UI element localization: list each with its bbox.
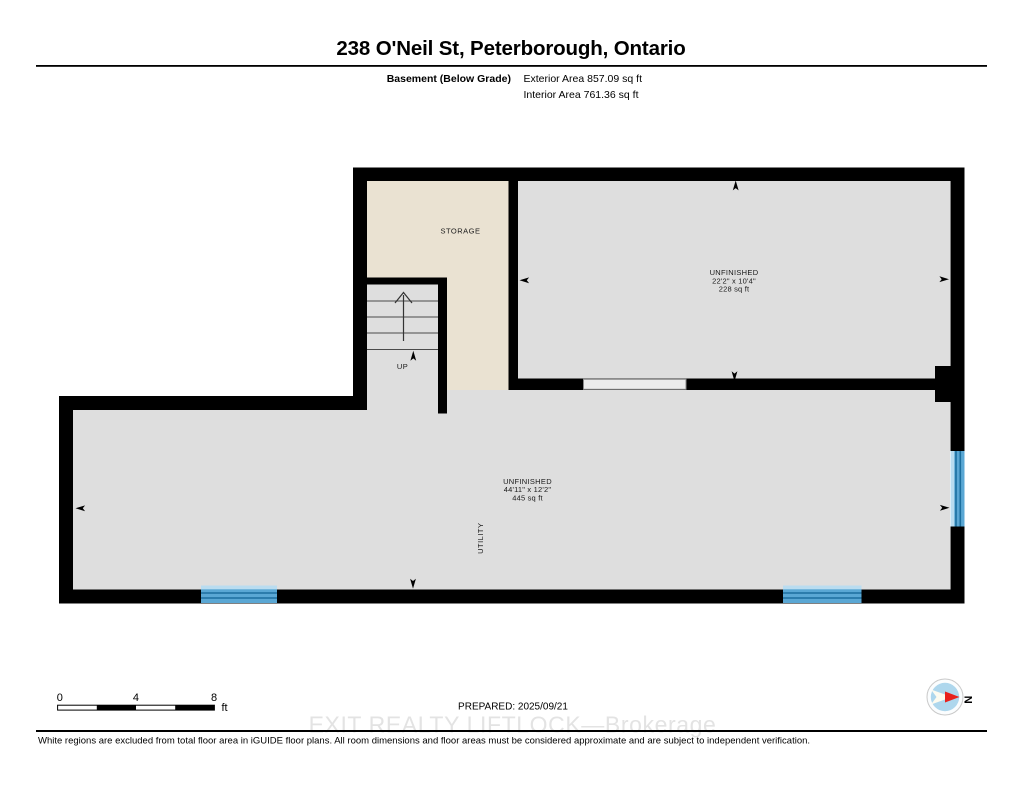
svg-text:EXIT REALTY LIFTLOCK—Brokerage: EXIT REALTY LIFTLOCK—Brokerage xyxy=(309,712,717,738)
svg-text:UTILITY: UTILITY xyxy=(476,522,485,553)
svg-text:4: 4 xyxy=(133,692,139,704)
svg-text:Basement (Below Grade): Basement (Below Grade) xyxy=(387,73,511,85)
svg-text:Exterior Area 857.09 sq ft: Exterior Area 857.09 sq ft xyxy=(524,73,643,85)
svg-text:238 O'Neil St, Peterborough, O: 238 O'Neil St, Peterborough, Ontario xyxy=(336,37,685,60)
svg-text:445 sq ft: 445 sq ft xyxy=(512,493,543,502)
svg-text:ft: ft xyxy=(222,702,228,714)
svg-text:8: 8 xyxy=(211,692,217,704)
svg-text:228 sq ft: 228 sq ft xyxy=(719,285,750,294)
svg-text:PREPARED: 2025/09/21: PREPARED: 2025/09/21 xyxy=(458,702,568,713)
svg-text:Interior Area 761.36 sq ft: Interior Area 761.36 sq ft xyxy=(524,89,639,101)
svg-text:UP: UP xyxy=(397,362,408,371)
svg-text:N: N xyxy=(962,696,974,704)
svg-text:STORAGE: STORAGE xyxy=(440,227,480,236)
svg-text:White regions are excluded fro: White regions are excluded from total fl… xyxy=(38,736,810,747)
svg-text:0: 0 xyxy=(57,692,63,704)
